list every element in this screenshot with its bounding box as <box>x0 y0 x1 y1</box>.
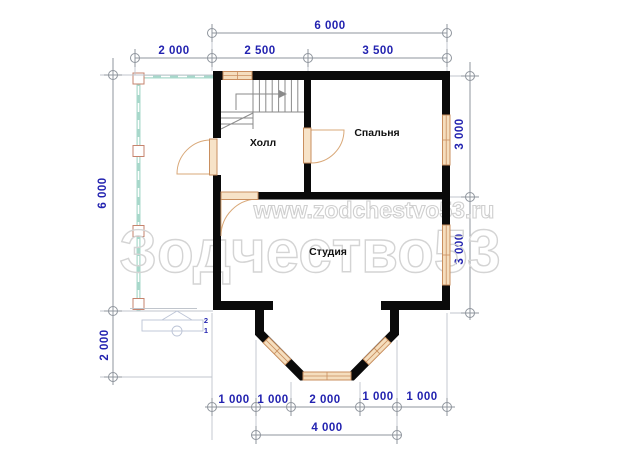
dim-bot-1: 1 000 <box>218 394 249 406</box>
dim-left-main: 6 000 <box>97 177 109 208</box>
dim-bot-3: 2 000 <box>309 394 340 406</box>
dim-left-lower: 2 000 <box>99 329 111 360</box>
dim-bot-2: 1 000 <box>257 394 288 406</box>
dim-bot-4: 1 000 <box>362 391 393 403</box>
dim-bot-overall: 4 000 <box>311 422 342 434</box>
wall-bottom-left <box>213 301 273 310</box>
wall-right-2 <box>442 165 450 225</box>
dim-top-overall: 6 000 <box>314 20 345 32</box>
watermark-url: www.zodchestvo53.ru <box>253 197 495 223</box>
step-section-marker: 2 1 <box>130 309 208 337</box>
wall-right-1 <box>442 71 450 115</box>
dim-top-seg2: 2 500 <box>244 45 275 57</box>
dim-top-seg1: 2 000 <box>158 45 189 57</box>
window-bedroom <box>443 115 451 165</box>
door-entrance <box>177 139 217 175</box>
window-studio <box>443 225 451 285</box>
dim-right-upper: 3 000 <box>454 118 466 149</box>
floor-plan-svg: 6 000 2 000 2 500 3 500 6 000 2 000 3 00… <box>0 0 640 470</box>
dim-top-seg3: 3 500 <box>362 45 393 57</box>
floor-bay <box>259 310 395 376</box>
wall-middle <box>258 192 442 200</box>
wall-left-upper <box>213 71 221 138</box>
step-mark-upper: 2 <box>204 316 208 325</box>
room-label-bedroom: Спальня <box>354 127 399 139</box>
window-top <box>223 72 252 80</box>
floor-plan-image: 6 000 2 000 2 500 3 500 6 000 2 000 3 00… <box>0 0 640 470</box>
room-label-studio: Студия <box>309 246 347 258</box>
wall-left-lower <box>213 175 221 310</box>
bay-window-center <box>303 372 351 380</box>
step-mark-lower: 1 <box>204 326 208 335</box>
room-label-hall: Холл <box>250 137 276 149</box>
dim-bot-5: 1 000 <box>406 391 437 403</box>
wall-hall-bedroom-upper <box>304 80 311 128</box>
wall-bottom-right <box>381 301 450 310</box>
